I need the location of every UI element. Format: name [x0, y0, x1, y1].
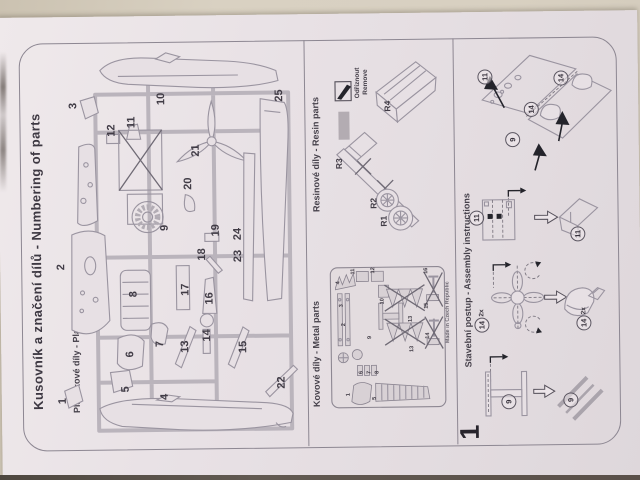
assembly-callout: 14 [524, 102, 539, 117]
assembly-callout-number: 11 [469, 210, 484, 225]
paper-edge-shadow [0, 52, 6, 192]
metal-part-number: 8 [374, 371, 380, 374]
metal-part-number: 15 [424, 303, 430, 309]
plastic-part-number: 5 [120, 386, 132, 392]
plastic-part-number: 12 [105, 124, 117, 136]
plastic-part-number: 21 [190, 144, 202, 156]
plastic-part-number: 10 [155, 93, 167, 105]
resin-part-label: R1 [379, 216, 389, 227]
assembly-callout-number: 9 [505, 132, 520, 147]
assembly-callout-number: 9 [563, 392, 578, 407]
plastic-part-number: 7 [154, 341, 166, 347]
metal-part-number: 11 [350, 269, 356, 275]
metal-part-number: 3 [339, 304, 345, 307]
assembly-callout-number: 11 [477, 69, 492, 84]
plastic-part-number: 3 [67, 103, 79, 109]
assembly-callout: 9 [563, 392, 578, 407]
metal-part-number: 5 [372, 397, 378, 400]
assembly-callout-qty: 2x [478, 309, 485, 316]
metal-part-number: 7 [366, 371, 372, 374]
metal-part-number: 13 [408, 316, 414, 322]
assembly-callout-number: 14 [553, 70, 568, 85]
table-edge-shadow [0, 475, 640, 480]
metal-part-number: 13 [409, 346, 415, 352]
plastic-part-number: 2 [55, 264, 67, 270]
plastic-part-number: 9 [159, 225, 171, 231]
metal-part-number: 4 [335, 281, 341, 284]
resin-part-label: R3 [334, 158, 344, 169]
assembly-callout-number: 9 [501, 394, 516, 409]
plastic-part-number: 16 [204, 292, 216, 304]
resin-part-label: R4 [382, 101, 392, 112]
metal-part-number: 1 [346, 393, 352, 396]
plastic-part-number: 19 [210, 224, 222, 236]
plastic-part-number: 1 [57, 398, 69, 404]
assembly-callout-number: 14 [524, 102, 539, 117]
metal-part-number: 10 [380, 298, 386, 304]
plastic-part-number: 11 [125, 116, 137, 128]
assembly-callout-number: 14 [576, 315, 591, 330]
assembly-callout-number: 11 [570, 226, 585, 241]
assembly-callout: 142x [576, 307, 591, 330]
metal-part-number: 6 [358, 371, 364, 374]
part-number-labels-layer: 3121110252120919242182381716671314155142… [0, 10, 640, 480]
assembly-callout: 11 [469, 210, 484, 225]
plastic-part-number: 22 [276, 376, 288, 388]
instruction-sheet-paper: Kusovník a značení dílů - Numbering of p… [0, 10, 640, 480]
plastic-part-number: 4 [159, 394, 171, 400]
plastic-part-number: 14 [201, 329, 213, 341]
plastic-part-number: 15 [237, 341, 249, 353]
assembly-callout-number: 14 [474, 318, 489, 333]
plastic-part-number: 13 [179, 340, 191, 352]
metal-part-number: 14 [425, 333, 431, 339]
metal-part-number: 16 [423, 268, 429, 274]
assembly-callout-qty: 2x [580, 307, 587, 314]
assembly-callout: 9 [501, 394, 516, 409]
metal-part-number: 9 [367, 336, 373, 339]
plastic-part-number: 18 [196, 248, 208, 260]
plastic-part-number: 6 [124, 351, 136, 357]
plastic-part-number: 23 [232, 250, 244, 262]
assembly-callout: 11 [477, 69, 492, 84]
resin-part-label: R2 [368, 198, 378, 209]
assembly-callout: 9 [505, 132, 520, 147]
metal-part-number: 12 [370, 267, 376, 273]
plastic-part-number: 8 [128, 291, 140, 297]
assembly-callout: 11 [570, 226, 585, 241]
assembly-callout: 142x [474, 309, 489, 332]
assembly-callout: 14 [553, 70, 568, 85]
plastic-part-number: 24 [232, 228, 244, 240]
plastic-part-number: 25 [273, 89, 285, 101]
plastic-part-number: 17 [179, 283, 191, 295]
photo-background: Kusovník a značení dílů - Numbering of p… [0, 0, 640, 480]
metal-part-number: 2 [341, 323, 347, 326]
plastic-part-number: 20 [182, 177, 194, 189]
